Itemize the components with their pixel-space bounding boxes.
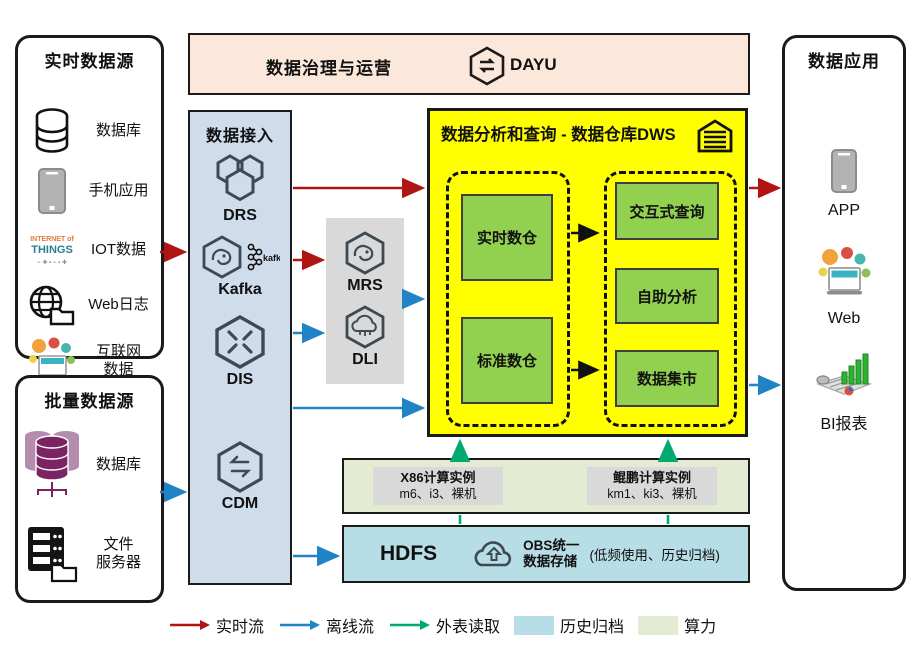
compute-swatch	[638, 616, 678, 635]
greenbox-label: 交互式查询	[629, 201, 704, 222]
architecture-diagram: 实时数据源 数据库 手机应用	[0, 0, 914, 651]
list-item: 文件 服务器	[24, 520, 157, 588]
legend-item: 历史归档	[514, 613, 624, 637]
greenbox-label: 标准数仓	[477, 350, 537, 371]
service-label: CDM	[222, 495, 258, 513]
legend: 实时流 离线流 外表读取 历史归档 算力	[168, 613, 716, 637]
mrs-icon	[342, 230, 388, 276]
external-read-arrow-icon	[388, 618, 430, 632]
legend-item: 算力	[638, 613, 716, 637]
dis-icon	[213, 314, 267, 370]
web-bubbles-icon	[816, 246, 872, 302]
self-analysis-box: 自助分析	[615, 268, 719, 324]
data-mart-box: 数据集市	[615, 350, 719, 407]
source-label: 手机应用	[80, 182, 157, 200]
list-item: 数据库	[24, 420, 157, 510]
dli-icon	[342, 304, 388, 350]
instance-name: X86计算实例	[400, 470, 475, 485]
service-label: MRS	[347, 277, 383, 295]
warehouse-icon	[695, 118, 735, 154]
greenbox-label: 自助分析	[637, 286, 697, 307]
legend-item: 实时流	[168, 613, 264, 637]
list-item: 数据库	[24, 104, 157, 158]
iot-word-big: THINGS	[31, 244, 73, 256]
app-phone-icon	[830, 148, 858, 194]
greenbox-label: 实时数仓	[477, 227, 537, 248]
applications-panel: 数据应用 APP	[782, 35, 906, 591]
realtime-warehouse-box: 实时数仓	[461, 194, 553, 281]
batch-sources-title: 批量数据源	[18, 387, 161, 412]
legend-label: 离线流	[326, 613, 374, 637]
source-label: 互联网 数据	[80, 343, 157, 379]
service-item: kafka Kafka	[190, 234, 290, 299]
greenbox-label: 数据集市	[637, 368, 697, 389]
service-label: DRS	[223, 207, 257, 225]
obs-label: OBS统一 数据存储	[523, 538, 579, 570]
legend-label: 外表读取	[436, 613, 500, 637]
realtime-sources-panel: 实时数据源 数据库 手机应用	[15, 35, 164, 359]
database-cluster-icon	[24, 426, 80, 504]
service-label: DLI	[352, 351, 378, 369]
dws-title: 数据分析和查询 - 数据仓库DWS	[441, 121, 676, 145]
list-item: 手机应用	[24, 165, 157, 217]
database-icon	[24, 106, 80, 156]
dayu-label: DAYU	[510, 55, 557, 75]
bi-report-icon	[814, 350, 874, 402]
source-label: 文件 服务器	[80, 536, 157, 572]
storage-note: (低频使用、历史归档)	[589, 544, 720, 564]
legend-label: 历史归档	[560, 613, 624, 637]
interactive-query-box: 交互式查询	[615, 182, 719, 240]
obs-cloud-icon	[471, 537, 517, 571]
obs-line1: OBS统一	[523, 538, 579, 553]
processing-box: MRS DLI	[326, 218, 404, 384]
service-label: Kafka	[218, 281, 262, 299]
iot-wordcloud-icon: INTERNET of THINGS ⌁ ✚ ▪ ⌁ ▪ ✚	[24, 232, 80, 268]
legend-item: 离线流	[278, 613, 374, 637]
applications-title: 数据应用	[785, 47, 903, 72]
drs-icon	[212, 150, 268, 206]
list-item: INTERNET of THINGS ⌁ ✚ ▪ ⌁ ▪ ✚ IOT数据	[24, 223, 157, 277]
offline-flow-arrow-icon	[278, 618, 320, 632]
compute-bar: X86计算实例 m6、i3、裸机 鲲鹏计算实例 km1、ki3、裸机	[342, 458, 750, 514]
list-item: Web	[785, 246, 903, 328]
service-item: MRS	[326, 230, 404, 295]
source-label: 数据库	[80, 122, 157, 140]
legend-item: 外表读取	[388, 613, 500, 637]
governance-title: 数据治理与运营	[266, 54, 392, 79]
service-item: DLI	[326, 304, 404, 369]
ingestion-column: 数据接入 DRS	[188, 110, 292, 585]
mobile-phone-icon	[24, 167, 80, 215]
history-archive-swatch	[514, 616, 554, 635]
obs-line2: 数据存储	[523, 554, 577, 569]
governance-banner: 数据治理与运营 DAYU	[188, 33, 750, 95]
instance-spec: km1、ki3、裸机	[607, 487, 697, 501]
service-item: CDM	[190, 440, 290, 513]
list-item: APP	[785, 148, 903, 220]
source-label-line1: 互联网	[96, 343, 141, 360]
instance-spec: m6、i3、裸机	[399, 487, 476, 501]
source-label-line1: 文件	[103, 536, 133, 553]
app-label: Web	[828, 310, 861, 328]
batch-sources-panel: 批量数据源	[15, 375, 164, 603]
source-label: Web日志	[80, 296, 157, 314]
web-log-icon	[24, 283, 80, 327]
legend-label: 算力	[684, 613, 716, 637]
service-item: DIS	[190, 314, 290, 389]
cdm-icon	[215, 440, 265, 494]
realtime-sources-title: 实时数据源	[18, 47, 161, 72]
source-label-line2: 服务器	[96, 554, 141, 571]
file-server-icon	[24, 525, 80, 583]
standard-warehouse-box: 标准数仓	[461, 317, 553, 404]
list-item: BI报表	[785, 350, 903, 434]
x86-instance-box: X86计算实例 m6、i3、裸机	[373, 467, 503, 505]
dws-box: 数据分析和查询 - 数据仓库DWS 实时数仓 标准数仓 交互式查询 自助分析 数…	[427, 108, 748, 437]
instance-name: 鲲鹏计算实例	[613, 470, 691, 485]
dayu-icon	[468, 46, 506, 86]
list-item: Web日志	[24, 279, 157, 331]
realtime-flow-arrow-icon	[168, 618, 210, 632]
kafka-logo-text: kafka	[263, 253, 280, 263]
storage-bar: HDFS OBS统一 数据存储 (低频使用、历史归档)	[342, 525, 750, 583]
iot-word-small: INTERNET of	[30, 236, 74, 243]
app-label: APP	[828, 202, 860, 220]
service-item: DRS	[190, 150, 290, 225]
hdfs-label: HDFS	[380, 542, 437, 566]
source-label: IOT数据	[80, 241, 157, 259]
source-label: 数据库	[80, 456, 157, 474]
ingestion-title: 数据接入	[190, 122, 290, 146]
kunpeng-instance-box: 鲲鹏计算实例 km1、ki3、裸机	[587, 467, 717, 505]
kafka-icon: kafka	[200, 234, 280, 280]
service-label: DIS	[227, 371, 254, 389]
app-label: BI报表	[820, 410, 867, 434]
legend-label: 实时流	[216, 613, 264, 637]
